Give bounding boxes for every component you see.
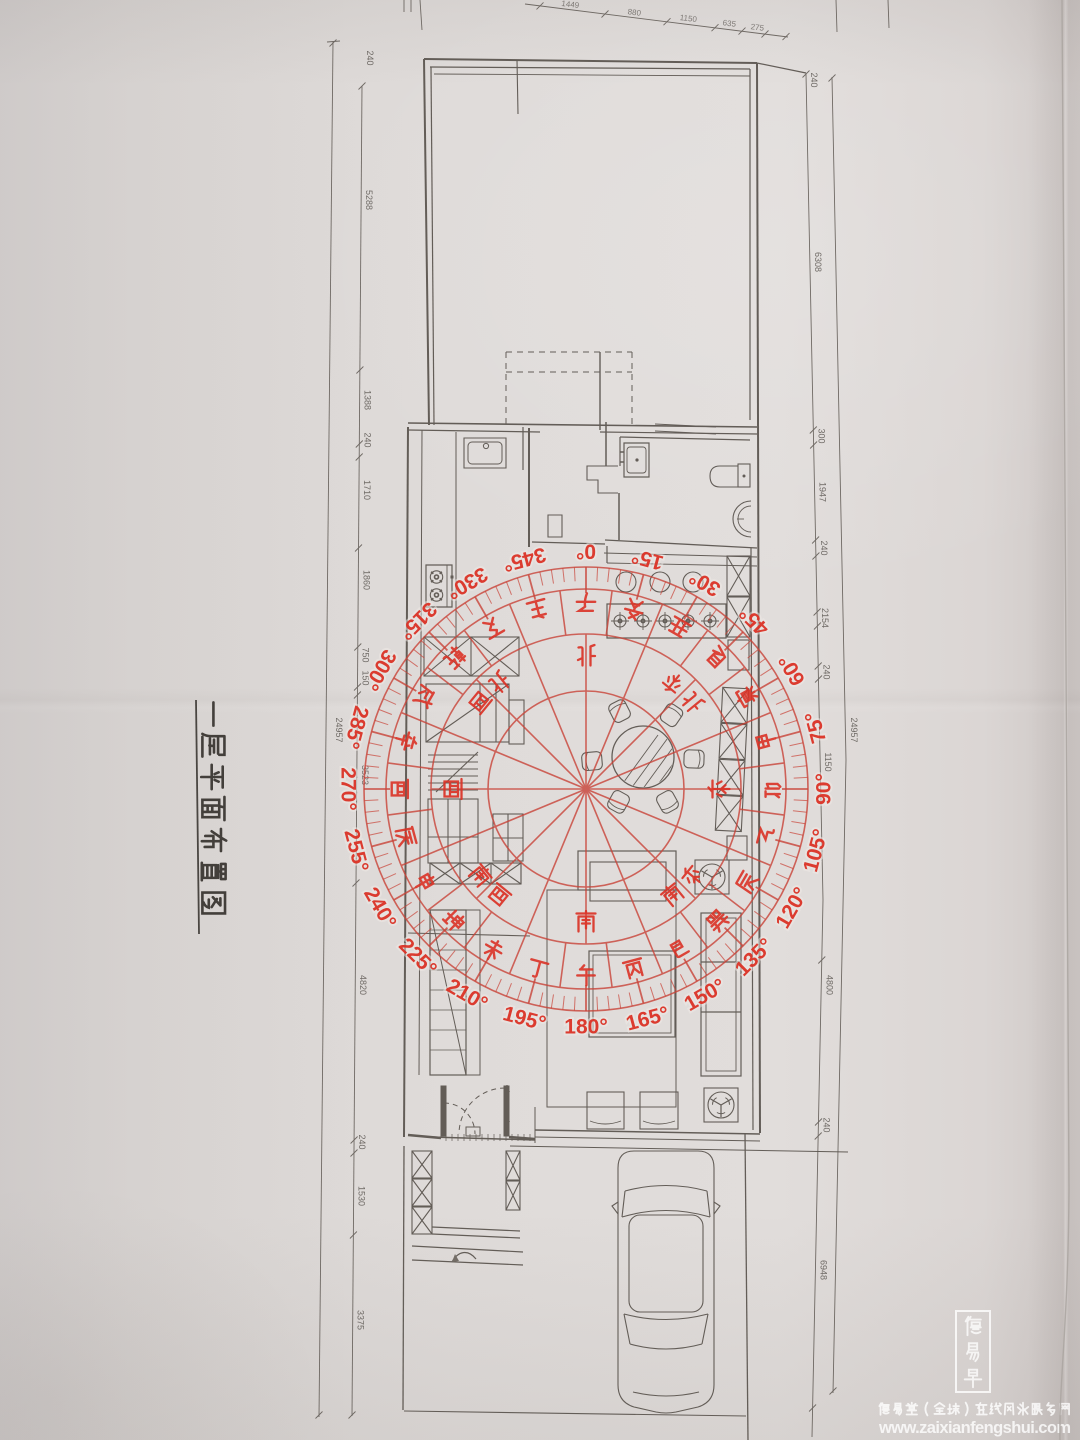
svg-text:1530: 1530 [357, 1186, 367, 1206]
svg-text:1388: 1388 [363, 390, 373, 410]
svg-text:5288: 5288 [364, 190, 374, 210]
svg-text:1947: 1947 [818, 482, 828, 502]
svg-text:75°: 75° [801, 709, 831, 746]
svg-text:750: 750 [361, 647, 371, 662]
svg-text:635: 635 [722, 18, 737, 29]
svg-text:4820: 4820 [358, 975, 368, 995]
svg-text:www.zaixianfengshui.com: www.zaixianfengshui.com [878, 1419, 1071, 1437]
svg-text:240: 240 [362, 432, 372, 447]
svg-text:150°: 150° [680, 974, 729, 1016]
svg-text:1150: 1150 [679, 13, 698, 24]
svg-text:4800: 4800 [824, 975, 834, 995]
svg-text:240: 240 [819, 540, 829, 555]
svg-text:30°: 30° [685, 565, 724, 601]
svg-text:180°: 180° [564, 1016, 607, 1039]
svg-text:880: 880 [627, 7, 642, 18]
svg-text:300: 300 [816, 428, 826, 443]
svg-text:330°: 330° [442, 562, 491, 604]
svg-text:15°: 15° [629, 544, 666, 574]
svg-text:240: 240 [365, 50, 375, 65]
svg-text:6948: 6948 [818, 1260, 828, 1280]
svg-text:240°: 240° [359, 883, 401, 932]
svg-text:60°: 60° [774, 650, 810, 689]
svg-text:240: 240 [809, 72, 819, 87]
svg-text:6308: 6308 [813, 252, 823, 272]
svg-text:90°: 90° [813, 773, 836, 805]
svg-text:2154: 2154 [820, 608, 830, 628]
svg-text:270°: 270° [337, 767, 360, 810]
svg-text:240: 240 [357, 1134, 367, 1149]
svg-text:240: 240 [821, 664, 831, 679]
svg-text:24957: 24957 [849, 717, 859, 742]
svg-text:1860: 1860 [361, 570, 371, 590]
svg-text:1710: 1710 [362, 480, 372, 500]
svg-text:275: 275 [750, 22, 765, 33]
svg-text:1150: 1150 [823, 752, 833, 771]
svg-text:120°: 120° [771, 883, 813, 932]
svg-text:3375: 3375 [356, 1310, 366, 1330]
svg-text:0°: 0° [576, 540, 596, 563]
svg-text:240: 240 [821, 1117, 831, 1132]
